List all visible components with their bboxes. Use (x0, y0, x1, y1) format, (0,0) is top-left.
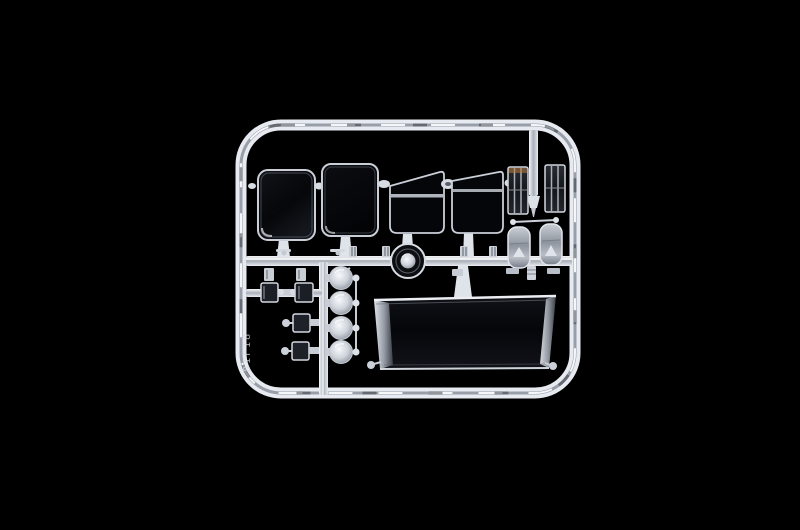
ribbed-lens-2 (545, 165, 565, 212)
gate-nub-core (445, 182, 451, 186)
window-divider (391, 194, 443, 198)
square-lens-1 (261, 283, 278, 302)
gate-ball (549, 362, 557, 370)
ribbed-lens-1 (508, 167, 528, 214)
gate-nub (378, 180, 390, 188)
striped-clip (349, 246, 357, 257)
side-window-1 (248, 170, 324, 240)
striped-clip (489, 246, 497, 257)
small-clip (506, 268, 519, 274)
runner-nub (264, 268, 274, 281)
striped-clip (460, 246, 468, 257)
link-ball (553, 217, 559, 223)
photo-stage: 81F18 (0, 0, 800, 530)
link-ball (510, 219, 516, 225)
striped-clip (382, 246, 390, 257)
small-clip (547, 268, 560, 274)
connector-pin (278, 289, 296, 295)
segmented-connector (527, 266, 536, 280)
door-window-2 (452, 172, 512, 233)
gate-ball (367, 361, 375, 369)
windshield (367, 296, 557, 370)
sprue-photo: 81F18 (0, 0, 800, 530)
small-clip (452, 269, 463, 276)
window-divider (453, 189, 502, 192)
roof-light-lens (391, 244, 425, 278)
warm-reflection (509, 168, 527, 173)
mirror-2 (540, 224, 562, 265)
square-lens-2 (295, 283, 313, 302)
runner-nub (296, 268, 306, 281)
embossed-part-code: 81F18 (242, 332, 253, 372)
gate-nub (248, 183, 256, 189)
